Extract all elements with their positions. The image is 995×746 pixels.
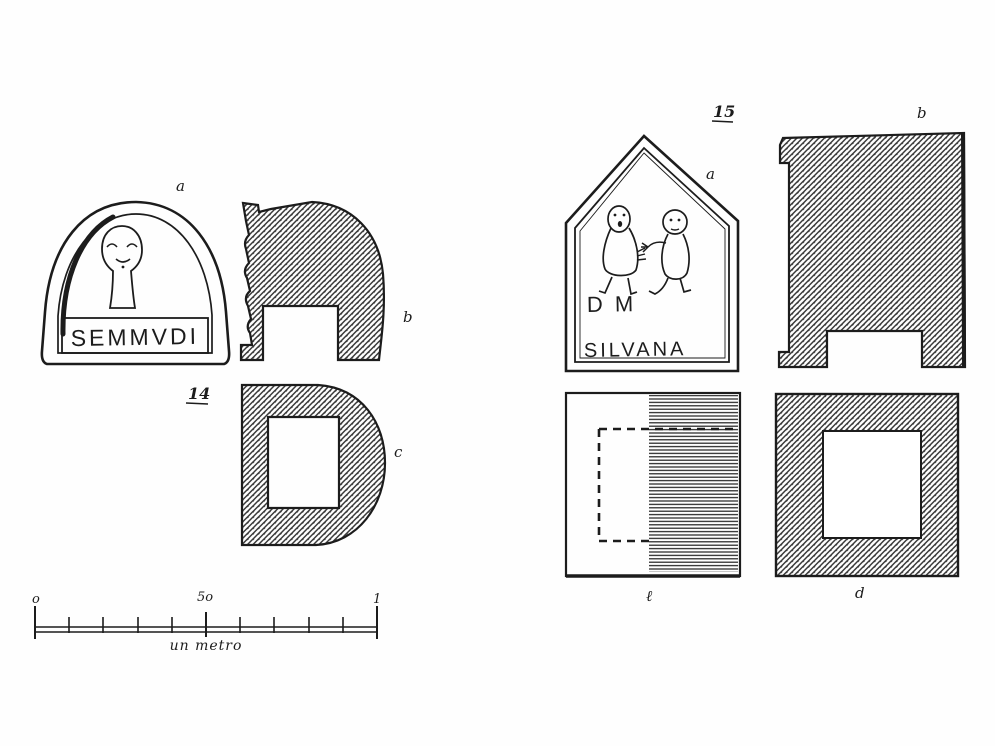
stele-silvana-plan-lined — [566, 393, 740, 576]
bust-left-eye — [107, 244, 117, 247]
scale-label-end: 1 — [373, 592, 381, 607]
left-figure — [599, 206, 646, 294]
stele-semmvdi-elevation: SEMMVDI — [42, 202, 229, 364]
plan-l-ruled-area — [649, 395, 738, 572]
inscription-semmvdi: SEMMVDI — [70, 323, 199, 351]
figure-15-number: 15 — [713, 102, 735, 121]
section-b-left-shape — [241, 202, 384, 360]
plan-d-socket — [823, 431, 921, 538]
label-a-left: a — [176, 177, 185, 195]
right-figure-mouth — [671, 229, 679, 230]
left-figure-eye-1 — [614, 214, 617, 217]
plan-c-socket — [268, 417, 339, 508]
scale-caption: un metro — [170, 638, 243, 654]
left-figure-leg-1 — [599, 277, 612, 293]
left-figure-head — [608, 206, 630, 232]
scale-label-start: o — [32, 592, 40, 607]
plate-canvas: a SEMMVDI 14 b — [0, 0, 995, 746]
figure-15: 15 a — [566, 102, 965, 605]
figure-15-underline — [712, 121, 733, 122]
engraving-plate: a SEMMVDI 14 b — [0, 0, 995, 746]
figure-14: a SEMMVDI 14 b — [42, 177, 413, 545]
right-figure-body — [662, 234, 689, 279]
right-figure — [641, 210, 691, 294]
label-d-right: d — [855, 584, 865, 602]
bust-chin-dot — [122, 266, 125, 269]
stele-semmvdi-plan — [242, 385, 385, 545]
stele-semmvdi-section — [241, 202, 384, 360]
inscription-silvana: SILVANA — [584, 338, 687, 362]
figure-14-underline — [186, 403, 208, 404]
left-figure-body — [603, 228, 638, 276]
scale-bar: o 5o 1 un metro — [32, 590, 381, 654]
scale-label-mid: 5o — [197, 590, 213, 605]
carved-bust — [102, 226, 142, 308]
left-figure-eye-2 — [623, 214, 626, 217]
bust-right-eye — [127, 244, 137, 247]
label-l-right: ℓ — [646, 587, 652, 605]
left-figure-mouth — [618, 221, 622, 227]
label-c-left: c — [394, 443, 403, 461]
label-b-left: b — [403, 308, 413, 326]
bust-mouth — [116, 259, 130, 262]
right-figure-eye-1 — [670, 219, 673, 222]
figure-14-number: 14 — [188, 384, 210, 403]
inscription-dm: D M — [587, 291, 637, 317]
right-figure-eye-2 — [678, 219, 681, 222]
stele-silvana-plan-frame — [776, 394, 958, 576]
section-b-heavy-edge — [963, 134, 964, 366]
incised-figures — [599, 206, 691, 294]
right-figure-leg-2 — [680, 278, 691, 292]
right-figure-leg-1 — [649, 278, 668, 294]
section-b-right-shape — [779, 133, 965, 367]
plan-c-d-shape — [242, 385, 385, 545]
stele-silvana-section — [779, 133, 965, 367]
label-a-right: a — [706, 165, 715, 183]
label-b-right: b — [917, 104, 927, 122]
